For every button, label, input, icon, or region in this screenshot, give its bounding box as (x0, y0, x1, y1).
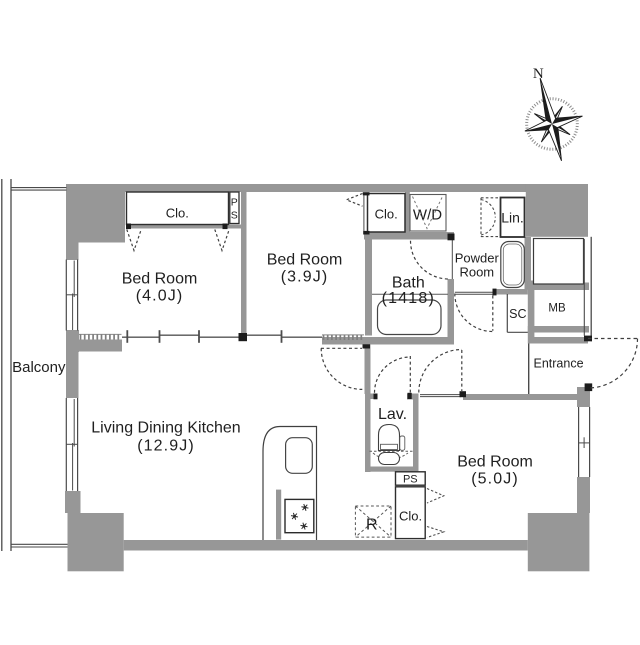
svg-text:S: S (231, 210, 238, 222)
svg-text:Clo.: Clo. (399, 509, 422, 524)
svg-text:N: N (533, 66, 544, 82)
svg-text:R: R (366, 517, 378, 534)
svg-text:W/D: W/D (413, 207, 442, 224)
svg-text:Clo.: Clo. (166, 206, 189, 221)
svg-text:MB: MB (548, 303, 566, 315)
svg-text:PowderRoom: PowderRoom (455, 250, 500, 279)
svg-text:Clo.: Clo. (375, 206, 398, 221)
svg-text:SC: SC (509, 307, 526, 321)
svg-text:Lin.: Lin. (501, 210, 524, 226)
svg-text:PS: PS (403, 474, 418, 486)
svg-text:P: P (231, 197, 238, 209)
svg-text:Lav.: Lav. (378, 406, 407, 423)
svg-text:Entrance: Entrance (533, 357, 583, 371)
svg-text:Balcony: Balcony (12, 359, 66, 376)
